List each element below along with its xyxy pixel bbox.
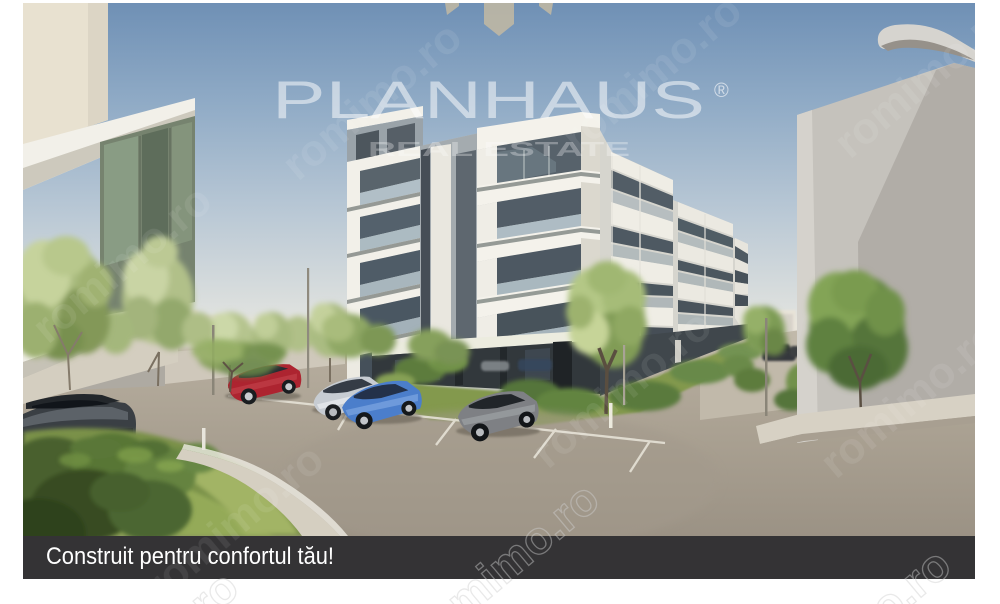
svg-text:®: ®: [714, 80, 729, 102]
